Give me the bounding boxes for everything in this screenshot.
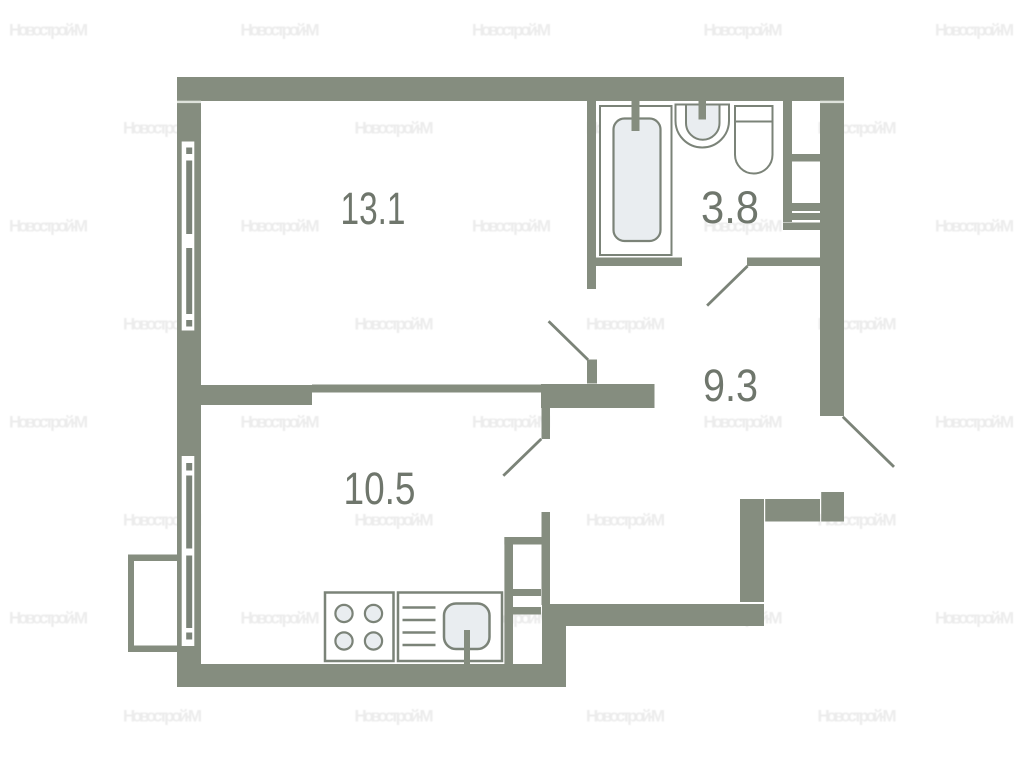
svg-text:Новострой-М: Новострой-М (935, 217, 1014, 236)
svg-text:Новострой-М: Новострой-М (9, 413, 88, 432)
svg-text:Новострой-М: Новострой-М (472, 217, 551, 236)
svg-text:13.1: 13.1 (341, 183, 406, 234)
svg-text:Новострой-М: Новострой-М (355, 707, 434, 726)
svg-text:Новострой-М: Новострой-М (355, 315, 434, 334)
svg-text:10.5: 10.5 (344, 463, 416, 514)
svg-text:Новострой-М: Новострой-М (241, 609, 320, 628)
svg-text:Новострой-М: Новострой-М (935, 21, 1014, 40)
svg-text:Новострой-М: Новострой-М (9, 609, 88, 628)
svg-text:Новострой-М: Новострой-М (9, 21, 88, 40)
svg-text:Новострой-М: Новострой-М (586, 315, 665, 334)
svg-text:Новострой-М: Новострой-М (586, 707, 665, 726)
svg-text:Новострой-М: Новострой-М (935, 609, 1014, 628)
svg-text:Новострой-М: Новострой-М (123, 707, 202, 726)
svg-text:Новострой-М: Новострой-М (241, 21, 320, 40)
svg-text:3.8: 3.8 (701, 182, 759, 233)
svg-text:Новострой-М: Новострой-М (241, 413, 320, 432)
svg-text:Новострой-М: Новострой-М (704, 413, 783, 432)
svg-text:9.3: 9.3 (703, 360, 758, 411)
svg-text:Новострой-М: Новострой-М (586, 511, 665, 530)
svg-text:Новострой-М: Новострой-М (472, 21, 551, 40)
svg-text:Новострой-М: Новострой-М (355, 119, 434, 138)
svg-text:Новострой-М: Новострой-М (472, 413, 551, 432)
svg-text:Новострой-М: Новострой-М (818, 707, 897, 726)
svg-text:Новострой-М: Новострой-М (935, 413, 1014, 432)
svg-text:Новострой-М: Новострой-М (704, 21, 783, 40)
svg-text:Новострой-М: Новострой-М (9, 217, 88, 236)
svg-text:Новострой-М: Новострой-М (241, 217, 320, 236)
